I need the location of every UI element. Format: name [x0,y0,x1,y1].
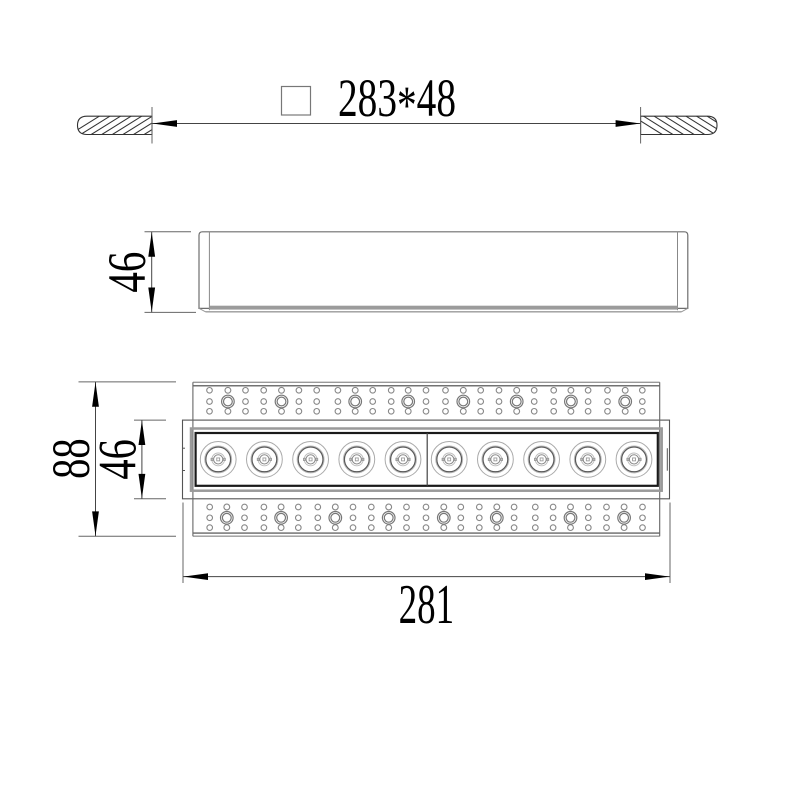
svg-text:46: 46 [97,252,157,293]
svg-text:281: 281 [399,574,455,636]
svg-text:283*48: 283*48 [338,68,456,135]
svg-text:46: 46 [88,439,148,480]
